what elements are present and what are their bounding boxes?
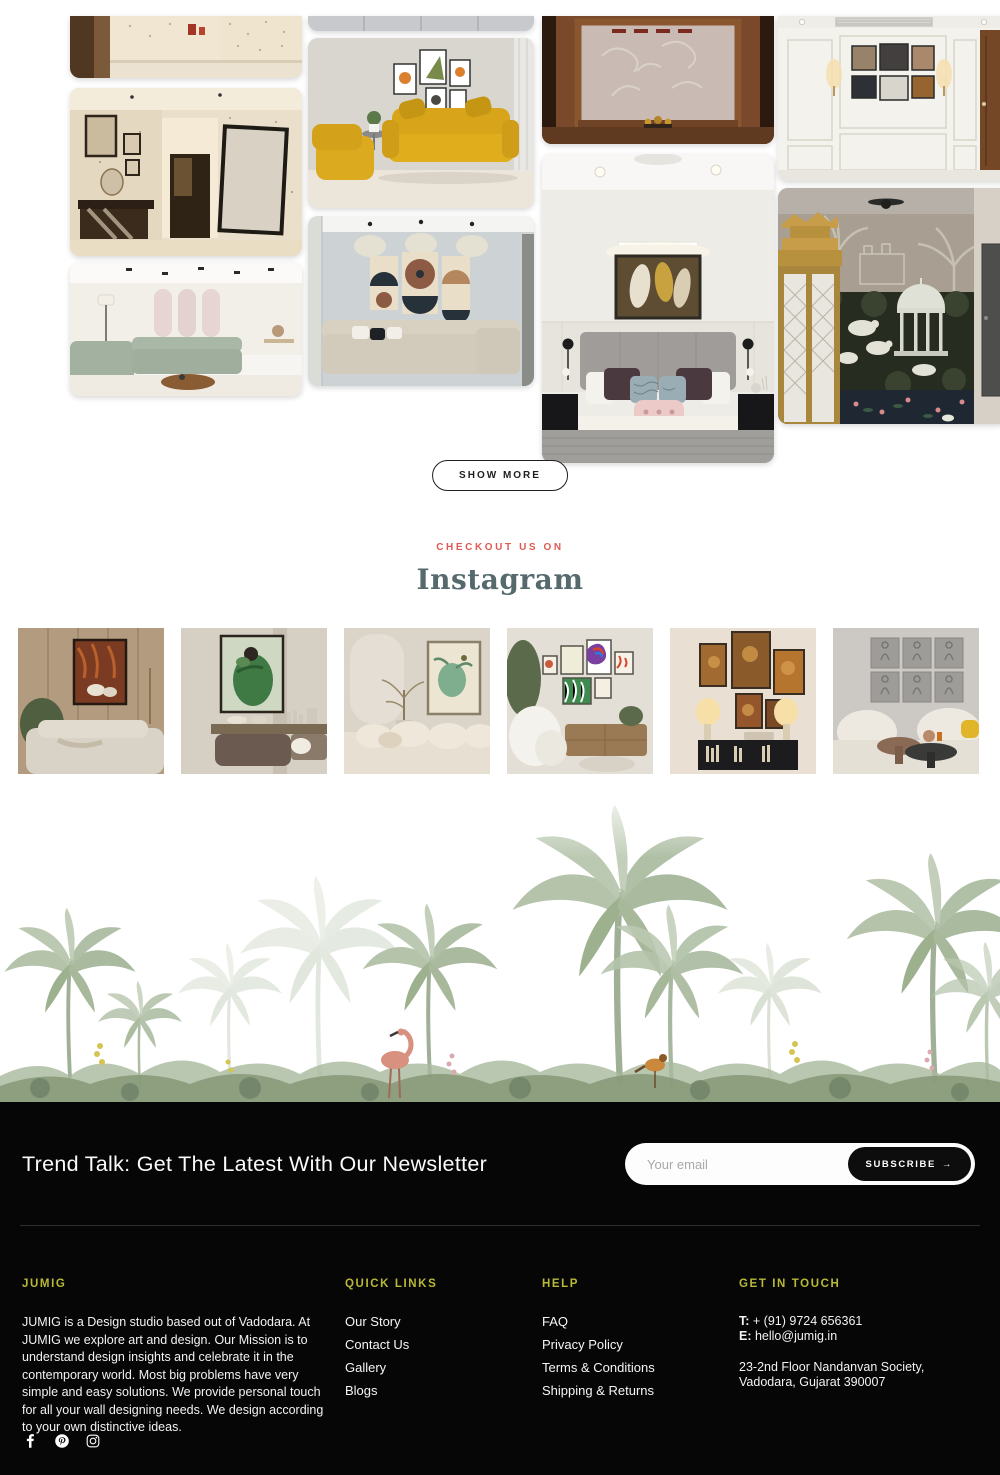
photo-illustration bbox=[778, 188, 1000, 424]
gallery-photo-yellow-sofa[interactable] bbox=[308, 38, 534, 208]
photo-illustration bbox=[70, 88, 302, 256]
photo-illustration bbox=[70, 263, 302, 396]
facebook-icon[interactable] bbox=[24, 1434, 38, 1448]
footer-link-blogs[interactable]: Blogs bbox=[345, 1383, 542, 1398]
gallery-photo-mandir[interactable] bbox=[542, 16, 774, 144]
footer-link-privacy-policy[interactable]: Privacy Policy bbox=[542, 1337, 739, 1352]
gallery-photo-hallway[interactable] bbox=[70, 88, 302, 256]
footer: Trend Talk: Get The Latest With Our News… bbox=[0, 1102, 1000, 1475]
botanical-mural-illustration bbox=[0, 778, 1000, 1102]
photo-illustration bbox=[308, 38, 534, 208]
email-address[interactable]: hello@jumig.in bbox=[752, 1329, 838, 1343]
gallery-photo-arch-living-room[interactable] bbox=[70, 263, 302, 396]
phone-number[interactable]: + (91) 9724 656361 bbox=[749, 1314, 862, 1328]
photo-illustration bbox=[308, 16, 534, 31]
gallery-photo-grey-panels[interactable] bbox=[308, 16, 534, 31]
footer-phone-line: T: + (91) 9724 656361 bbox=[739, 1314, 980, 1329]
instagram-thumb-2[interactable] bbox=[181, 628, 327, 774]
footer-link-faq[interactable]: FAQ bbox=[542, 1314, 739, 1329]
instagram-kicker: CHECKOUT US ON bbox=[0, 542, 1000, 553]
footer-divider bbox=[20, 1225, 980, 1226]
footer-help-column: HELP FAQ Privacy Policy Terms & Conditio… bbox=[542, 1278, 739, 1437]
footer-link-terms[interactable]: Terms & Conditions bbox=[542, 1360, 739, 1375]
footer-about-text: JUMIG is a Design studio based out of Va… bbox=[22, 1314, 324, 1437]
subscribe-label: SUBSCRIBE bbox=[866, 1159, 936, 1170]
footer-about-heading: JUMIG bbox=[22, 1278, 345, 1290]
photo-illustration bbox=[70, 16, 302, 78]
photo-illustration bbox=[670, 628, 816, 774]
project-gallery: SHOW MORE bbox=[0, 0, 1000, 447]
footer-link-our-story[interactable]: Our Story bbox=[345, 1314, 542, 1329]
footer-social-links bbox=[24, 1434, 100, 1448]
instagram-strip bbox=[18, 628, 979, 774]
instagram-thumb-6[interactable] bbox=[833, 628, 979, 774]
footer-link-gallery[interactable]: Gallery bbox=[345, 1360, 542, 1375]
instagram-icon[interactable] bbox=[86, 1434, 100, 1448]
gallery-photo-mural-room[interactable] bbox=[778, 188, 1000, 424]
instagram-thumb-5[interactable] bbox=[670, 628, 816, 774]
photo-illustration bbox=[344, 628, 490, 774]
phone-label: T: bbox=[739, 1314, 749, 1328]
gallery-photo-bedroom[interactable] bbox=[542, 154, 774, 463]
footer-help-heading: HELP bbox=[542, 1278, 739, 1290]
instagram-title: Instagram bbox=[0, 563, 1000, 596]
instagram-thumb-3[interactable] bbox=[344, 628, 490, 774]
footer-link-shipping[interactable]: Shipping & Returns bbox=[542, 1383, 739, 1398]
instagram-thumb-1[interactable] bbox=[18, 628, 164, 774]
newsletter-form: SUBSCRIBE → bbox=[625, 1143, 975, 1185]
footer-columns: JUMIG JUMIG is a Design studio based out… bbox=[22, 1278, 980, 1437]
arrow-right-icon: → bbox=[942, 1159, 953, 1170]
photo-illustration bbox=[833, 628, 979, 774]
footer-email-line: E: hello@jumig.in bbox=[739, 1329, 980, 1344]
newsletter-title: Trend Talk: Get The Latest With Our News… bbox=[22, 1152, 487, 1177]
instagram-thumb-4[interactable] bbox=[507, 628, 653, 774]
photo-illustration bbox=[542, 16, 774, 144]
pinterest-icon[interactable] bbox=[55, 1434, 69, 1448]
footer-link-contact-us[interactable]: Contact Us bbox=[345, 1337, 542, 1352]
photo-illustration bbox=[507, 628, 653, 774]
footer-contact-column: GET IN TOUCH T: + (91) 9724 656361 E: he… bbox=[739, 1278, 980, 1437]
footer-address-line2: Vadodara, Gujarat 390007 bbox=[739, 1375, 980, 1390]
photo-illustration bbox=[18, 628, 164, 774]
photo-illustration bbox=[542, 154, 774, 463]
footer-quick-links-heading: QUICK LINKS bbox=[345, 1278, 542, 1290]
gallery-photo-circle-art[interactable] bbox=[308, 216, 534, 386]
botanical-mural bbox=[0, 778, 1000, 1102]
gallery-photo-foyer[interactable] bbox=[70, 16, 302, 78]
photo-illustration bbox=[181, 628, 327, 774]
email-label: E: bbox=[739, 1329, 752, 1343]
subscribe-button[interactable]: SUBSCRIBE → bbox=[848, 1147, 971, 1181]
photo-illustration bbox=[778, 16, 1000, 181]
footer-contact-heading: GET IN TOUCH bbox=[739, 1278, 980, 1290]
footer-address-line1: 23-2nd Floor Nandanvan Society, bbox=[739, 1360, 980, 1375]
gallery-photo-wainscot-wall[interactable] bbox=[778, 16, 1000, 181]
newsletter-email-input[interactable] bbox=[625, 1157, 848, 1172]
show-more-button[interactable]: SHOW MORE bbox=[432, 460, 568, 491]
footer-quick-links-column: QUICK LINKS Our Story Contact Us Gallery… bbox=[345, 1278, 542, 1437]
photo-illustration bbox=[308, 216, 534, 386]
footer-about-column: JUMIG JUMIG is a Design studio based out… bbox=[22, 1278, 345, 1437]
